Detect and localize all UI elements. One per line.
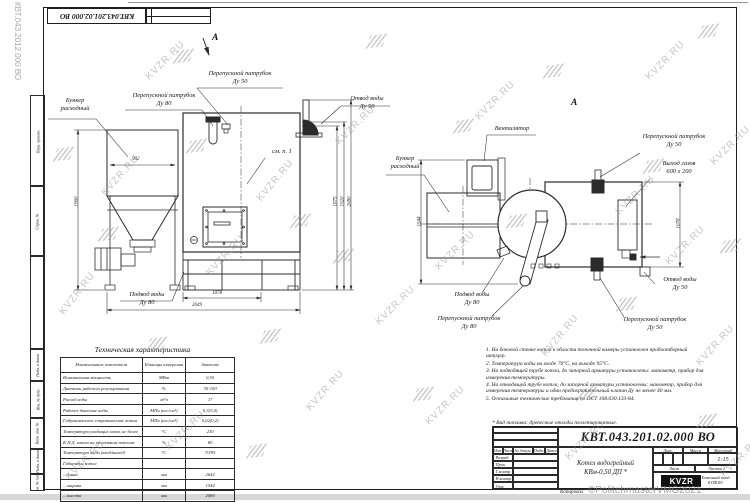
label-bunker-right: Бункер расходный: [381, 155, 429, 171]
tb-row-fill: [513, 461, 558, 468]
spec-table-cell: 30-100: [186, 384, 234, 394]
spec-col-header: Значение: [186, 358, 234, 372]
spec-table-cell: 17: [186, 394, 234, 404]
spec-table-cell: °С: [143, 448, 187, 458]
note-item: 2. Температура воды на входе 70°С, на вы…: [486, 361, 705, 367]
dim-1960: 1960: [75, 191, 80, 213]
paper-top-edge: [128, 2, 748, 3]
spec-table-cell: [143, 459, 187, 469]
spec-table-cell: 230: [186, 427, 234, 437]
tb-product-name: Котел водогрейный КВм-0,50 ДП *: [558, 447, 653, 490]
spec-table-cell: м³/ч: [143, 394, 187, 404]
technical-notes: 1. На боковой стенке котла в области топ…: [486, 347, 705, 403]
margin-cell: Подп. и дата: [30, 448, 45, 475]
dim-1875: 1875: [334, 191, 339, 213]
spec-table: Наименование показателя Единицы измерени…: [60, 357, 235, 502]
section-mark-a-left: А: [212, 33, 218, 43]
spec-table-cell: Гидравлическое сопротивление котла: [61, 416, 143, 426]
flipped-doc-number-stamp: КВТ.043.201.02.000 ВО: [47, 8, 147, 24]
dim-1544: 1544: [418, 211, 423, 233]
spec-table-cell: 70/95: [186, 448, 234, 458]
spec-table-cell: мм: [143, 469, 187, 479]
copyright-watermark: ©PolitehmasterVMG2021: [588, 485, 702, 496]
tb-row-fill: [513, 468, 558, 475]
section-mark-a-right: А: [571, 98, 577, 108]
tb-row-razrab: Разраб.: [493, 454, 513, 461]
tb-company-site: KVZR.RU: [701, 481, 729, 486]
spec-table-cell: 0,02(0,2): [186, 416, 234, 426]
dim-1078-top: 1078: [677, 213, 682, 235]
label-see-note-1: см. п. 1: [258, 148, 306, 156]
stamp-text: КВТ.043.201.02.000 ВО: [60, 12, 134, 21]
dim-2649: 2649: [192, 303, 202, 308]
spec-table-row: – высотамм2080: [61, 491, 234, 501]
margin-cell-label: Справ. №: [35, 213, 40, 229]
margin-cell: Взам. инв. №: [30, 417, 45, 450]
dim-1078-front: 1078: [212, 291, 222, 296]
tb-row-utv: Утв.: [493, 482, 513, 490]
kopiroval-label: Копировал: [560, 489, 583, 495]
spec-table-cell: МВт: [143, 373, 187, 383]
spec-table-cell: МПа (кгс/см²): [143, 405, 187, 415]
tb-col-doc: № докум.: [513, 447, 533, 454]
tb-col-date: Дата: [545, 447, 558, 454]
dim-1920: 1920: [341, 191, 346, 213]
tb-row-tkontr: Т.контр.: [493, 468, 513, 475]
tb-sheet: Лист: [653, 465, 695, 472]
spec-table-row: К.П.Д. котла на проектном топливе%80: [61, 437, 234, 448]
label-gas-outlet: Выход газов 600 х 200: [648, 160, 710, 176]
tb-lit-cell: [653, 453, 663, 465]
stamp-grid: [145, 8, 211, 24]
spec-table-cell: 1544: [186, 480, 234, 490]
tb-mass-cell: [683, 453, 708, 465]
label-overflow-du50: Перепускной патрубок Ду 50: [194, 70, 286, 86]
spec-table-cell: %: [143, 437, 187, 447]
tb-row-fill: [513, 482, 558, 490]
spec-table-cell: МПа (кгс/см²): [143, 416, 187, 426]
spec-table-cell: 80: [186, 437, 234, 447]
tb-col-sign: Подп.: [533, 447, 545, 454]
spec-table-cell: – длина: [61, 469, 143, 479]
margin-cell: Подп. и дата: [30, 348, 45, 382]
tb-company: Котельный завод KVZR.RU: [701, 476, 729, 485]
margin-cell: Инв. № подл.: [30, 473, 45, 491]
margin-cell-label: Инв. № дубл.: [35, 389, 40, 411]
spec-table-cell: Габариты котла: [61, 459, 143, 469]
tb-product-line2: КВм-0,50 ДП *: [584, 469, 627, 477]
margin-cell-label: Взам. инв. №: [35, 422, 40, 444]
tb-row-fill: [513, 475, 558, 482]
tb-row-fill: [513, 454, 558, 461]
label-overflow-du50-bot: Перепускной патрубок Ду 50: [606, 316, 704, 332]
spec-table-row: Номинальная мощностьМВт0,50: [61, 373, 234, 384]
label-water-inlet-top: Подвод воды Ду 80: [442, 291, 502, 307]
spec-table-cell: – ширина: [61, 480, 143, 490]
tb-row-nkontr: Н.контр.: [493, 475, 513, 482]
spec-table-cell: К.П.Д. котла на проектном топливе: [61, 437, 143, 447]
spec-table-row: Рабочее давление водыМПа (кгс/см²)0,3(3,…: [61, 405, 234, 416]
tb-sheets: Листов 1: [695, 465, 738, 472]
spec-table-row: – ширинамм1544: [61, 480, 234, 491]
spec-table-cell: 2080: [186, 491, 234, 501]
margin-cell: Справ. №: [30, 185, 45, 257]
tb-row-prov: Пров.: [493, 461, 513, 468]
spec-table-cell: %: [143, 384, 187, 394]
spec-table-row: Расход водым³/ч17: [61, 394, 234, 405]
spec-col-header: Единицы измерения: [143, 358, 187, 372]
tb-change-row: [493, 440, 558, 447]
spec-table-cell: 0,3(3,0): [186, 405, 234, 415]
tb-col-list: Лист: [503, 447, 513, 454]
spec-table-cell: Температура уходящих газов, не более: [61, 427, 143, 437]
spec-table-cell: – высота: [61, 491, 143, 501]
tb-lit-cell: [663, 453, 673, 465]
spec-table-cell: °С: [143, 427, 187, 437]
spec-table-cell: Расход воды: [61, 394, 143, 404]
tb-scale-value: 1:15: [708, 453, 738, 465]
note-item: 1. На боковой стенке котла в области топ…: [486, 347, 705, 360]
spec-table-cell: Диапазон рабочего регулирования: [61, 384, 143, 394]
margin-cell-label: Инв. № подл.: [35, 473, 40, 491]
side-doc-watermark: КВТ.043.2012.000 ВО: [10, 2, 22, 126]
margin-cell-label: Подп. и дата: [35, 354, 40, 377]
tb-doc-number: КВТ.043.201.02.000 ВО: [558, 427, 738, 447]
spec-col-header: Наименование показателя: [61, 358, 143, 372]
spec-table-cell: 2642: [186, 469, 234, 479]
note-item: 5. Остальные технические требования по О…: [486, 396, 705, 402]
tb-change-row: [493, 433, 558, 440]
spec-table-header: Наименование показателя Единицы измерени…: [61, 358, 234, 373]
note-item: 3. На подводящей трубе котла, до запорно…: [486, 368, 705, 381]
spec-table-row: – длинамм2642: [61, 469, 234, 480]
spec-table-cell: мм: [143, 491, 187, 501]
margin-cell: Инв. № дубл.: [30, 380, 45, 419]
label-water-outlet: Отвод воды Ду 50: [340, 95, 394, 111]
label-water-outlet-top: Отвод воды Ду 50: [652, 276, 708, 292]
label-bunker-left: Бункер расходный: [45, 97, 105, 113]
margin-cell: Перв. примен.: [30, 95, 45, 187]
tb-lit-cell: [673, 453, 683, 465]
tb-col-izm: Изм.: [493, 447, 503, 454]
label-overflow-du50-top: Перепускной патрубок Ду 50: [627, 133, 721, 149]
note-item: 4. На отводящей трубе котла, до запорной…: [486, 382, 705, 395]
label-water-inlet: Подвод воды Ду 80: [118, 291, 176, 307]
spec-table-row: Температура уходящих газов, не более°С23…: [61, 427, 234, 438]
spec-table-cell: [186, 459, 234, 469]
spec-table-row: Диапазон рабочего регулирования%30-100: [61, 384, 234, 395]
tb-product-line1: Котел водогрейный: [577, 460, 634, 468]
spec-table-cell: Рабочее давление воды: [61, 405, 143, 415]
spec-table-cell: мм: [143, 480, 187, 490]
spec-table-cell: Температура воды (вход/выход): [61, 448, 143, 458]
spec-table-title: Техническая характеристика: [75, 345, 210, 354]
spec-table-row: Температура воды (вход/выход)°С70/95: [61, 448, 234, 459]
margin-cell-label: Подп. и дата: [35, 450, 40, 473]
label-fan: Вентилятор: [485, 125, 539, 133]
spec-table-cell: 0,50: [186, 373, 234, 383]
drawing-sheet: { "watermark": { "text": "KVZR.RU", "sid…: [0, 0, 750, 500]
margin-cell-label: Перв. примен.: [35, 129, 40, 153]
dim-902: 902: [132, 157, 140, 162]
spec-table-cell: Номинальная мощность: [61, 373, 143, 383]
spec-table-row: Габариты котла: [61, 459, 234, 470]
spec-table-row: Гидравлическое сопротивление котлаМПа (к…: [61, 416, 234, 427]
margin-cell: [30, 255, 45, 350]
label-overflow-du80-top: Перепускной патрубок Ду 80: [420, 315, 518, 331]
label-overflow-du80: Перепускной патрубок Ду 80: [118, 92, 210, 108]
title-block: Изм. Лист № докум. Подп. Дата Разраб. Пр…: [492, 426, 737, 489]
dim-2080: 2080: [348, 191, 353, 213]
